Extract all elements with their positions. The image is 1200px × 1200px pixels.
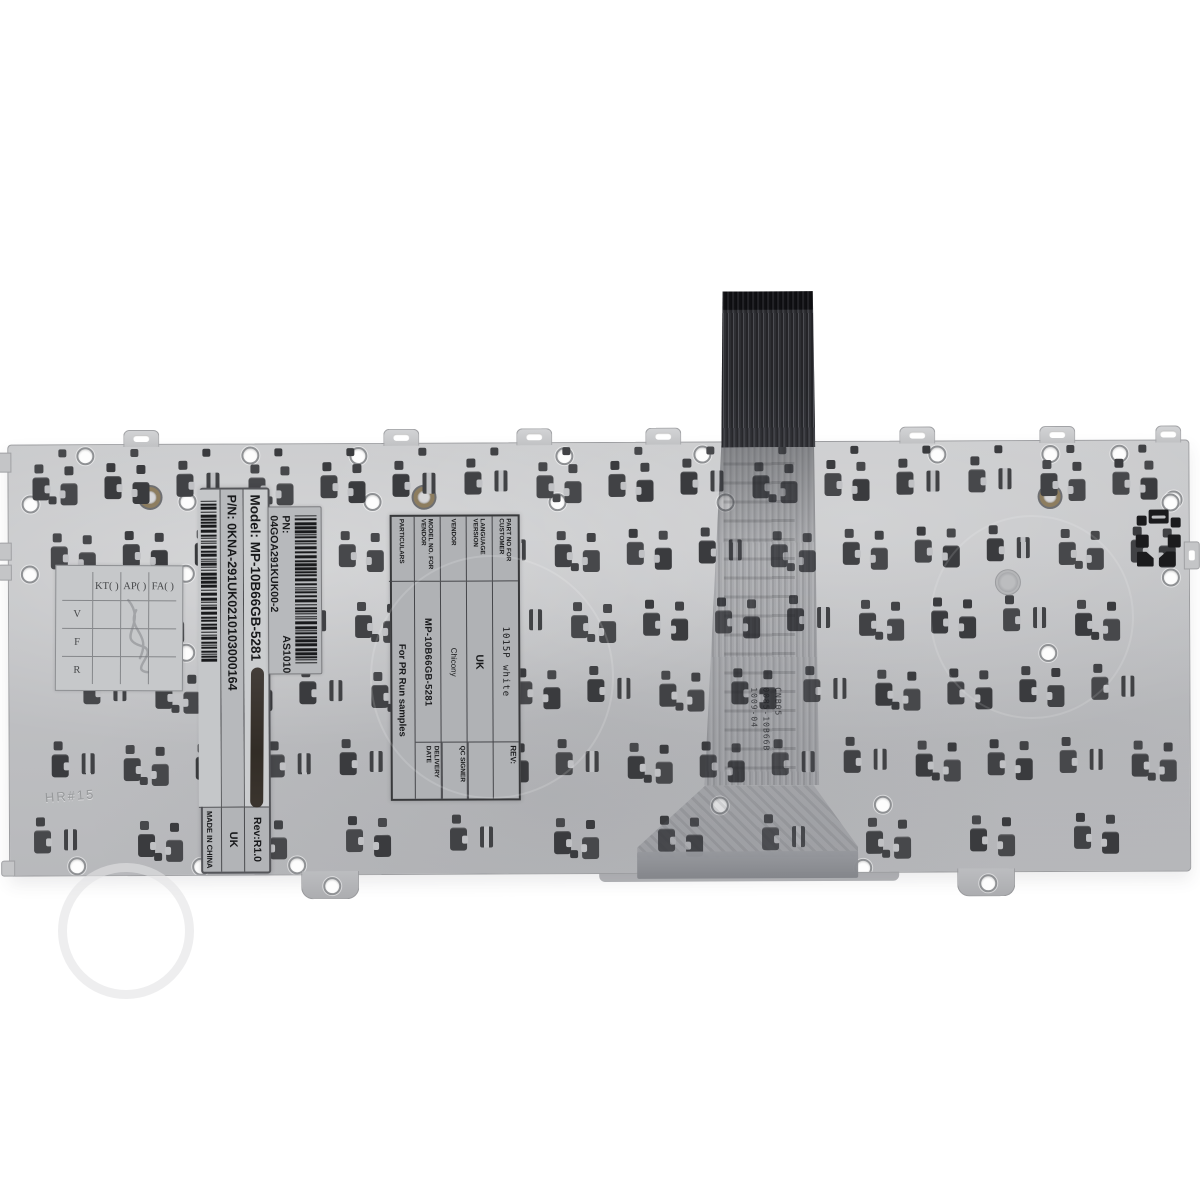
mounting-tab-bottom <box>301 871 359 899</box>
barcode-bar <box>295 589 317 590</box>
latch-hook <box>959 616 976 638</box>
latch-square <box>587 634 595 642</box>
ribbon-print-line1: CNB05 <box>771 687 783 791</box>
barcode-bar <box>201 543 217 544</box>
screw-hole <box>1039 644 1057 662</box>
latch-hook <box>339 544 356 567</box>
latch-square <box>1042 460 1051 469</box>
latch-hook-notch <box>1086 555 1092 563</box>
latch-hook-notch <box>636 487 642 495</box>
spec-rev-cell: REV: <box>468 742 519 798</box>
latch-square <box>136 465 145 474</box>
latch-square <box>1134 741 1143 750</box>
latch-hook-notch <box>1015 616 1021 624</box>
latch-cluster <box>947 668 993 714</box>
latch-square <box>126 745 135 754</box>
latch-square <box>875 632 883 640</box>
latch-hook-notch <box>942 552 948 560</box>
latch-square <box>64 466 73 475</box>
latch-square <box>826 460 835 469</box>
spec-value: MP-10B66GB-5281 <box>415 582 441 743</box>
latch-hook-notch <box>997 841 1003 849</box>
tab-screw-hole <box>323 877 341 895</box>
latch-hook-notch <box>980 477 986 485</box>
latch-hook <box>536 475 553 498</box>
latch-cluster <box>1091 664 1137 710</box>
barcode-bar <box>201 567 217 568</box>
barcode-bar <box>295 587 317 588</box>
latch-square <box>587 533 596 542</box>
latch-hook-notch <box>598 628 604 636</box>
spec-value: UK <box>467 581 493 742</box>
latch-hook <box>871 548 888 570</box>
barcode-bar <box>201 581 217 584</box>
barcode-bar <box>201 598 217 601</box>
spec-label: PART NO FOR CUSTOMER <box>493 516 518 581</box>
latch-cluster <box>124 745 170 791</box>
latch-square <box>1075 561 1083 569</box>
latch-square <box>1106 815 1115 824</box>
latch-hook-notch <box>358 837 364 845</box>
latch-square <box>603 604 612 613</box>
latch-cluster <box>866 818 912 864</box>
latch-hook-notch <box>1124 480 1130 488</box>
latch-hook <box>299 681 316 704</box>
latch-cluster <box>915 526 961 572</box>
latch-hook <box>1102 832 1119 854</box>
latch-hook <box>355 615 372 638</box>
latch-square <box>1076 813 1085 822</box>
latch-square <box>979 670 988 679</box>
punch-out-cutout <box>1136 535 1149 548</box>
latch-square <box>891 702 899 710</box>
spec-table-sticker: PART NO FOR CUSTOMER 1015P white LANGUAG… <box>390 514 521 801</box>
latch-hook-notch <box>311 689 317 697</box>
barcode-bar <box>201 561 217 562</box>
latch-hook-notch <box>568 760 574 768</box>
latch-square <box>1066 445 1074 453</box>
edge-nub-left <box>0 453 11 473</box>
latch-double-bar <box>926 471 939 492</box>
barcode-bar <box>295 618 317 619</box>
latch-hook <box>975 687 992 709</box>
spec-qc-signer-cell: QC SIGNER <box>442 743 468 799</box>
latch-square <box>918 741 927 750</box>
latch-square <box>850 446 858 454</box>
latch-double-bar <box>298 753 311 774</box>
latch-hook <box>464 472 481 495</box>
barcode-bar <box>201 501 217 502</box>
latch-square <box>970 456 979 465</box>
spec-value: For PR Run samples <box>389 582 415 799</box>
latch-hook-notch <box>974 694 980 702</box>
latch-hook <box>1087 548 1104 570</box>
ribbon-print-line3: 1009-04 <box>747 687 759 791</box>
latch-hook-notch <box>686 697 692 705</box>
mounting-tab-top <box>899 427 935 444</box>
latch-square <box>948 742 957 751</box>
latch-hook <box>687 690 704 712</box>
spec-value: 1015P white <box>493 581 519 742</box>
barcode-bar <box>201 577 217 580</box>
barcode-bar <box>295 626 317 629</box>
barcode-bar <box>201 551 217 553</box>
barcode-bar <box>201 654 217 655</box>
barcode-bar <box>295 546 317 549</box>
latch-square <box>1062 737 1071 746</box>
latch-square <box>556 818 565 827</box>
barcode-bar <box>295 571 317 573</box>
barcode-bar <box>295 534 317 535</box>
latch-square <box>659 531 668 540</box>
barcode-bar <box>295 648 317 651</box>
latch-square <box>371 533 380 542</box>
latch-cluster <box>392 461 438 507</box>
latch-square <box>538 462 547 471</box>
latch-cluster <box>1003 595 1049 641</box>
latch-hook <box>371 685 388 708</box>
latch-cluster <box>450 814 496 860</box>
latch-square <box>949 668 958 677</box>
barcode-bar <box>201 515 217 518</box>
latch-cluster <box>628 743 674 789</box>
latch-square <box>875 531 884 540</box>
latch-square <box>573 602 582 611</box>
latch-hook <box>450 828 467 851</box>
latch-square <box>675 602 684 611</box>
latch-double-bar <box>617 678 630 699</box>
latch-hook-notch <box>999 546 1005 554</box>
latch-double-bar <box>1033 607 1046 628</box>
latch-hook-notch <box>1101 839 1107 847</box>
latch-hook-notch <box>1086 834 1092 842</box>
latch-cluster <box>1040 460 1086 506</box>
barcode-bar <box>201 504 217 506</box>
barcode-bar <box>295 518 317 520</box>
latch-cluster <box>536 462 582 508</box>
latch-cluster <box>896 459 942 505</box>
latch-hook <box>998 834 1015 856</box>
model-number-text: Model: MP-10B66GB-5281 <box>244 489 269 806</box>
latch-hook <box>1068 479 1085 501</box>
latch-hook <box>866 831 883 854</box>
latch-square <box>1021 666 1030 675</box>
latch-hook-notch <box>280 762 286 770</box>
latch-cluster <box>556 739 602 785</box>
latch-cluster <box>299 668 345 714</box>
latch-square <box>682 459 691 468</box>
latch-hook <box>320 475 337 498</box>
latch-square <box>352 464 361 473</box>
latch-cluster <box>268 741 314 787</box>
barcode-bar <box>201 602 217 603</box>
latch-hook <box>1016 758 1033 780</box>
latch-hook <box>699 540 716 563</box>
latch-square <box>371 634 379 642</box>
latch-hook-notch <box>1046 692 1052 700</box>
latch-hook <box>915 540 932 563</box>
spec-label: LANGUAGE VERSION <box>467 516 492 581</box>
model-sticker-row3: MADE IN CHINA <box>198 490 222 872</box>
latch-square <box>280 466 289 475</box>
latch-double-bar <box>494 470 507 491</box>
latch-square <box>947 528 956 537</box>
latch-cluster <box>1132 740 1178 786</box>
latch-square <box>274 448 282 456</box>
latch-square <box>571 563 579 571</box>
latch-square <box>661 671 670 680</box>
barcode-bar <box>201 637 217 640</box>
latch-square <box>342 739 351 748</box>
latch-cluster <box>571 602 617 648</box>
latch-square <box>640 463 649 472</box>
latch-square <box>34 464 43 473</box>
latch-square <box>490 447 498 455</box>
ribbon-print-code: CNB05 0085-10B66B 1009-04 <box>727 687 791 791</box>
latch-square <box>36 817 45 826</box>
product-photo: HR#15 CNB05 0085-10B66B 1009-04 Model: M… <box>0 0 1200 1200</box>
latch-square <box>202 449 210 457</box>
latch-hook <box>943 545 960 567</box>
latch-double-bar <box>833 678 846 699</box>
tab-slot-hole <box>909 432 925 439</box>
marker-smear <box>250 667 264 807</box>
latch-hook <box>843 542 860 565</box>
latch-square <box>125 531 134 540</box>
barcode-bar <box>201 656 217 658</box>
spec-label: PARTICULARS <box>389 517 414 582</box>
barcode-bar <box>295 536 317 538</box>
barcode-bar <box>295 610 317 612</box>
pen-scribble <box>56 566 185 693</box>
latch-hook <box>608 474 625 497</box>
latch-hook-notch <box>1015 765 1021 773</box>
barcode-bar <box>201 554 217 557</box>
latch-hook-notch <box>332 483 338 491</box>
barcode-bar <box>295 574 317 576</box>
revision-text: Rev:R1.0 <box>245 806 269 871</box>
latch-hook-notch <box>132 489 138 497</box>
latch-hook-notch <box>1140 485 1146 493</box>
barcode-bar <box>295 659 317 660</box>
latch-hook-notch <box>1071 550 1077 558</box>
latch-square <box>1072 462 1081 471</box>
barcode-bar <box>295 591 317 593</box>
latch-cluster <box>34 817 80 863</box>
latch-hook <box>894 837 911 859</box>
qc-check-grid-sticker: KT( ) AP( ) FA( ) V F R <box>55 565 184 692</box>
mounting-tab-top <box>383 429 419 446</box>
latch-cluster <box>52 741 98 787</box>
latch-hook <box>392 474 409 497</box>
latch-hook-notch <box>44 485 50 493</box>
latch-square <box>140 777 148 785</box>
barcode-bar <box>201 570 217 571</box>
latch-square <box>891 602 900 611</box>
barcode-bar <box>201 605 217 606</box>
latch-square <box>898 459 907 468</box>
latch-double-bar <box>82 753 95 774</box>
vendor-pn-text: PN: 04GOA291KUK00-2 AS1010 <box>268 507 296 673</box>
latch-hook <box>34 830 51 853</box>
latch-hook-notch <box>542 694 548 702</box>
latch-hook <box>1160 759 1177 781</box>
latch-hook <box>166 840 183 862</box>
latch-hook-notch <box>135 552 141 560</box>
latch-square <box>557 531 566 540</box>
model-sticker: Model: MP-10B66GB-5281 Rev:R1.0 P/N: 0KN… <box>200 487 272 873</box>
latch-double-bar <box>329 680 342 701</box>
latch-cluster <box>32 464 78 510</box>
latch-square <box>49 496 57 504</box>
edge-nub-right <box>1184 541 1200 569</box>
edge-nub-left <box>1 861 15 877</box>
latch-double-bar <box>480 826 493 847</box>
latch-hook-notch <box>886 626 892 634</box>
latch-square <box>1138 445 1146 453</box>
latch-cluster <box>988 739 1034 785</box>
screw-hole <box>241 446 259 464</box>
latch-hook <box>824 473 841 496</box>
latch-square <box>1005 595 1014 604</box>
latch-hook <box>1074 826 1091 849</box>
latch-square <box>373 672 382 681</box>
latch-square <box>570 850 578 858</box>
latch-square <box>898 820 907 829</box>
latch-square <box>1107 602 1116 611</box>
latch-square <box>394 461 403 470</box>
latch-hook-notch <box>908 480 914 488</box>
latch-hook-notch <box>1159 767 1165 775</box>
barcode-bar <box>295 540 317 542</box>
latch-hook-notch <box>928 762 934 770</box>
punch-out-cutout <box>1168 534 1181 547</box>
barcode-bar <box>201 647 217 649</box>
latch-hook <box>1059 542 1076 565</box>
latch-hook <box>844 750 861 773</box>
latch-cluster <box>1075 600 1121 646</box>
latch-hook <box>636 480 653 502</box>
tab-slot-hole <box>1160 430 1176 437</box>
latch-cluster <box>844 737 890 783</box>
latch-hook-notch <box>599 687 605 695</box>
latch-square <box>1093 664 1102 673</box>
latch-square <box>1051 668 1060 677</box>
latch-cluster <box>346 816 392 862</box>
vendor-pn-sticker: PN: 04GOA291KUK00-2 AS1010 <box>268 506 323 674</box>
latch-hook-notch <box>476 480 482 488</box>
latch-hook-notch <box>382 628 388 636</box>
latch-hook-notch <box>852 486 858 494</box>
latch-double-bar <box>874 749 887 770</box>
ribbon-cable-end-strip <box>637 851 858 879</box>
latch-hook <box>1132 754 1149 777</box>
latch-hook-notch <box>927 548 933 556</box>
mounting-tab-top <box>516 428 552 445</box>
barcode-bar <box>295 595 317 597</box>
latch-square <box>452 815 461 824</box>
latch-hook <box>571 615 588 638</box>
latch-hook <box>123 544 140 567</box>
tab-slot-hole <box>133 435 149 442</box>
latch-square <box>675 703 683 711</box>
latch-hook <box>599 621 616 643</box>
latch-hook-notch <box>276 490 282 498</box>
barcode-bar <box>201 593 217 596</box>
latch-hook-notch <box>1031 687 1037 695</box>
barcode-bar <box>201 538 217 539</box>
latch-hook-notch <box>581 844 587 852</box>
latch-square <box>1164 743 1173 752</box>
latch-square <box>917 527 926 536</box>
barcode-bar <box>295 563 317 566</box>
flat-boss <box>995 569 1021 595</box>
edge-nub-hole <box>1189 550 1195 560</box>
mounting-tab-bottom <box>957 868 1015 896</box>
barcode-bar <box>295 578 317 581</box>
model-sticker-row2: P/N: 0KNA-291UK0210103000164 UK <box>220 490 245 872</box>
origin-text: MADE IN CHINA <box>199 807 221 872</box>
latch-cluster <box>104 463 150 509</box>
latch-hook <box>887 619 904 641</box>
latch-hook <box>104 476 121 499</box>
latch-hook <box>138 834 155 857</box>
latch-hook <box>1047 685 1064 707</box>
keyboard-backplate <box>7 439 1191 876</box>
spec-right-column: REV: QC SIGNER DELIVERY DATE <box>416 741 519 798</box>
latch-hook-notch <box>959 689 965 697</box>
spec-delivery-date-cell: DELIVERY DATE <box>416 743 442 799</box>
latch-cluster <box>970 815 1016 861</box>
latch-square <box>553 494 561 502</box>
latch-hook-notch <box>548 483 554 491</box>
latch-hook <box>176 474 193 497</box>
barcode-bar <box>201 546 217 549</box>
latch-cluster <box>916 740 962 786</box>
latch-cluster <box>931 597 977 643</box>
barcode-bar <box>201 522 217 524</box>
latch-hook-notch <box>583 623 589 631</box>
barcode-bar <box>201 507 217 510</box>
latch-cluster <box>340 739 386 785</box>
latch-cluster <box>987 525 1033 571</box>
latch-hook <box>659 684 676 707</box>
latch-hook <box>554 831 571 854</box>
latch-square <box>630 743 639 752</box>
barcode-bar <box>201 651 217 653</box>
barcode-bar <box>201 573 217 576</box>
latch-hook <box>852 479 869 501</box>
barcode-bar <box>201 530 217 533</box>
mounting-tab-top <box>1039 426 1075 443</box>
latch-hook-notch <box>878 839 884 847</box>
barcode-bar <box>201 627 217 630</box>
latch-hook <box>643 613 660 636</box>
latch-hook-notch <box>1144 762 1150 770</box>
latch-square <box>989 525 998 534</box>
latch-cluster <box>464 458 510 504</box>
latch-hook <box>1103 619 1120 641</box>
tab-slot-hole <box>1049 431 1065 438</box>
barcode-bar <box>295 621 317 624</box>
latch-square <box>140 821 149 830</box>
latch-hook-notch <box>151 771 157 779</box>
latch-hook <box>132 482 149 504</box>
latch-square <box>1061 529 1070 538</box>
barcode-bar <box>201 645 217 646</box>
latch-hook-notch <box>871 621 877 629</box>
latch-square <box>322 462 331 471</box>
